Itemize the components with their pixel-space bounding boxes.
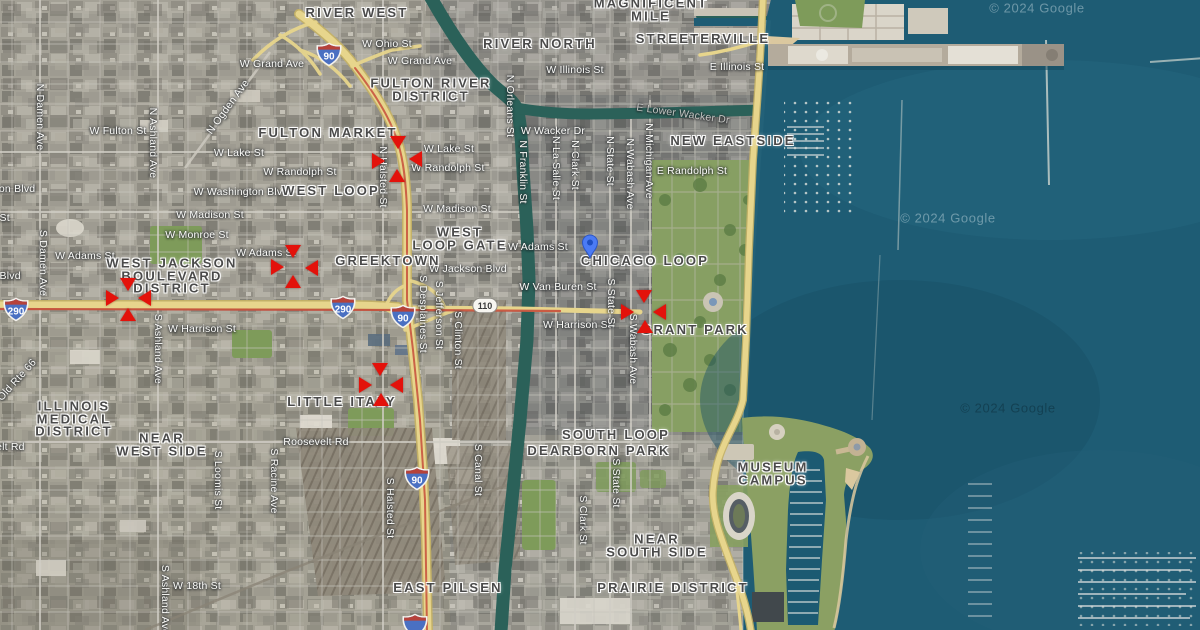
street-label: N Clark St xyxy=(569,140,581,190)
svg-text:90: 90 xyxy=(397,314,409,325)
red-arrow-marker[interactable] xyxy=(636,290,652,303)
neighborhood-label: NEARWEST SIDE xyxy=(116,433,207,458)
red-arrow-marker[interactable] xyxy=(305,260,318,276)
google-attribution-watermark: © 2024 Google xyxy=(989,1,1084,16)
neighborhood-label: MAGNIFICENTMILE xyxy=(594,0,708,23)
neighborhood-label: MUSEUMCAMPUS xyxy=(738,462,809,487)
interstate-shield: 90 xyxy=(390,304,417,334)
interstate-shield xyxy=(402,613,429,630)
svg-text:290: 290 xyxy=(335,305,352,316)
neighborhood-label-line: RIVER NORTH xyxy=(483,38,597,51)
red-arrow-marker[interactable] xyxy=(120,278,136,291)
neighborhood-label: WESTLOOP GATE xyxy=(412,227,507,252)
neighborhood-label: FULTON RIVERDISTRICT xyxy=(370,78,491,103)
street-label: W Illinois St xyxy=(546,64,603,76)
neighborhood-label-line: CAMPUS xyxy=(738,474,809,487)
neighborhood-label: NEARSOUTH SIDE xyxy=(606,534,707,559)
neighborhood-label-line: DISTRICT xyxy=(370,90,491,103)
neighborhood-label-line: GRANT PARK xyxy=(641,324,749,337)
street-label: W 18th St xyxy=(173,580,221,592)
street-label: S State St xyxy=(605,278,617,327)
red-arrow-marker[interactable] xyxy=(409,151,422,167)
street-label: W Grand Ave xyxy=(240,58,304,70)
street-label: W Harrison St xyxy=(543,319,611,331)
interstate-shield: 290 xyxy=(3,297,30,327)
neighborhood-label-line: PRAIRIE DISTRICT xyxy=(597,582,748,595)
neighborhood-label-line: NEW EASTSIDE xyxy=(670,135,795,148)
red-arrow-marker[interactable] xyxy=(373,393,389,406)
neighborhood-label: SOUTH LOOP xyxy=(562,429,670,442)
neighborhood-label: RIVER NORTH xyxy=(483,38,597,51)
neighborhood-label: STREETERVILLE xyxy=(636,33,771,46)
street-label: W Washington Blvd xyxy=(194,186,289,198)
satellite-imagery xyxy=(0,0,1200,630)
street-label: S Clark St xyxy=(577,495,589,544)
red-arrow-marker[interactable] xyxy=(359,377,372,393)
street-label: S Loomis St xyxy=(212,451,224,510)
neighborhood-label: EAST PILSEN xyxy=(393,582,502,595)
red-arrow-marker[interactable] xyxy=(653,304,666,320)
street-label: N Damen Ave xyxy=(34,84,46,151)
neighborhood-label-line: STREETERVILLE xyxy=(636,33,771,46)
neighborhood-label: NEW EASTSIDE xyxy=(670,135,795,148)
svg-text:90: 90 xyxy=(323,52,335,63)
neighborhood-label-line: SOUTH LOOP xyxy=(562,429,670,442)
street-label: W Harrison St xyxy=(168,323,236,335)
street-label: N Wabash Ave xyxy=(624,138,636,209)
red-arrow-marker[interactable] xyxy=(285,275,301,288)
neighborhood-label-line: LOOP GATE xyxy=(412,239,507,252)
street-label: E Illinois St xyxy=(710,61,765,73)
street-label: S Racine Ave xyxy=(268,448,280,513)
street-label: W Lake St xyxy=(214,147,264,159)
street-label: N Ashland Ave xyxy=(147,108,159,179)
street-label: E Randolph St xyxy=(657,165,727,177)
red-arrow-marker[interactable] xyxy=(621,304,634,320)
neighborhood-label-line: WEST SIDE xyxy=(116,445,207,458)
red-arrow-marker[interactable] xyxy=(285,245,301,258)
state-route-shield: 110 xyxy=(472,298,498,319)
street-label: W Randolph St xyxy=(411,162,484,174)
red-arrow-marker[interactable] xyxy=(138,290,151,306)
satellite-map-canvas[interactable]: W Ohio StW Grand AveW Grand AveW Illinoi… xyxy=(0,0,1200,630)
street-label: N Orleans St xyxy=(504,75,516,138)
svg-text:90: 90 xyxy=(411,476,423,487)
street-label: W Lake St xyxy=(424,143,474,155)
red-arrow-marker[interactable] xyxy=(372,363,388,376)
neighborhood-label-line: SOUTH SIDE xyxy=(606,546,707,559)
neighborhood-label: PRAIRIE DISTRICT xyxy=(597,582,748,595)
interstate-shield: 290 xyxy=(330,295,357,325)
street-label: W Madison St xyxy=(176,209,244,221)
street-label: Roosevelt Rd xyxy=(0,441,25,453)
neighborhood-label: ILLINOISMEDICALDISTRICT xyxy=(35,400,113,438)
neighborhood-label-line: DEARBORN PARK xyxy=(527,445,670,458)
street-label: S Desplaines St xyxy=(417,275,429,353)
street-label: S Canal St xyxy=(472,444,484,496)
neighborhood-label: WEST LOOP xyxy=(282,185,380,198)
street-label: N La Salle St xyxy=(550,136,562,200)
svg-text:110: 110 xyxy=(478,301,493,311)
street-label: W Grand Ave xyxy=(388,55,452,67)
street-label: W Jackson Blvd xyxy=(0,270,21,282)
neighborhood-label-line: EAST PILSEN xyxy=(393,582,502,595)
neighborhood-label: GREEKTOWN xyxy=(335,255,441,268)
google-attribution-watermark: © 2024 Google xyxy=(900,211,995,226)
street-label: W Fulton St xyxy=(89,125,146,137)
red-arrow-marker[interactable] xyxy=(120,308,136,321)
street-label: W Monroe St xyxy=(165,229,228,241)
street-label: S Ashland Ave xyxy=(152,314,164,384)
street-label: W Randolph St xyxy=(263,166,336,178)
street-label: Roosevelt Rd xyxy=(283,436,348,448)
street-label: N Franklin St xyxy=(517,140,529,203)
street-label: N Michigan Ave xyxy=(643,123,655,199)
red-arrow-marker[interactable] xyxy=(390,136,406,149)
street-label: S Damen Ave xyxy=(37,230,49,296)
street-label: N State St xyxy=(604,136,616,186)
street-label: W Ohio St xyxy=(362,38,412,50)
street-label: W Madison St xyxy=(423,203,491,215)
neighborhood-label-line: MILE xyxy=(594,10,708,23)
street-label: S Jefferson St xyxy=(433,281,445,350)
neighborhood-label-line: DISTRICT xyxy=(35,425,113,438)
neighborhood-label: FULTON MARKET xyxy=(258,127,397,140)
red-arrow-marker[interactable] xyxy=(389,169,405,182)
neighborhood-label-line: WEST LOOP xyxy=(282,185,380,198)
street-label: W Washington Blvd xyxy=(0,183,35,195)
neighborhood-label: DEARBORN PARK xyxy=(527,445,670,458)
street-label: S Halsted St xyxy=(384,478,396,539)
neighborhood-label-line: GREEKTOWN xyxy=(335,255,441,268)
red-arrow-marker[interactable] xyxy=(637,320,653,333)
neighborhood-label-line: FULTON MARKET xyxy=(258,127,397,140)
street-label: W Van Buren St xyxy=(519,281,596,293)
street-label: S State St xyxy=(610,458,622,507)
neighborhood-label: RIVER WEST xyxy=(306,7,409,20)
street-label: W Madison St xyxy=(0,212,10,224)
interstate-shield: 90 xyxy=(316,42,343,72)
neighborhood-label-line: RIVER WEST xyxy=(306,7,409,20)
red-arrow-marker[interactable] xyxy=(390,377,403,393)
street-label: S Ashland Ave xyxy=(159,565,171,630)
street-label: S Clinton St xyxy=(452,311,464,369)
red-arrow-marker[interactable] xyxy=(372,153,385,169)
neighborhood-label: GRANT PARK xyxy=(641,324,749,337)
street-label: W Adams St xyxy=(508,241,568,253)
red-arrow-marker[interactable] xyxy=(271,259,284,275)
interstate-shield: 90 xyxy=(404,466,431,496)
svg-text:290: 290 xyxy=(8,307,25,318)
google-attribution-watermark: © 2024 Google xyxy=(960,401,1055,416)
map-pin[interactable] xyxy=(579,233,601,264)
red-arrow-marker[interactable] xyxy=(106,290,119,306)
